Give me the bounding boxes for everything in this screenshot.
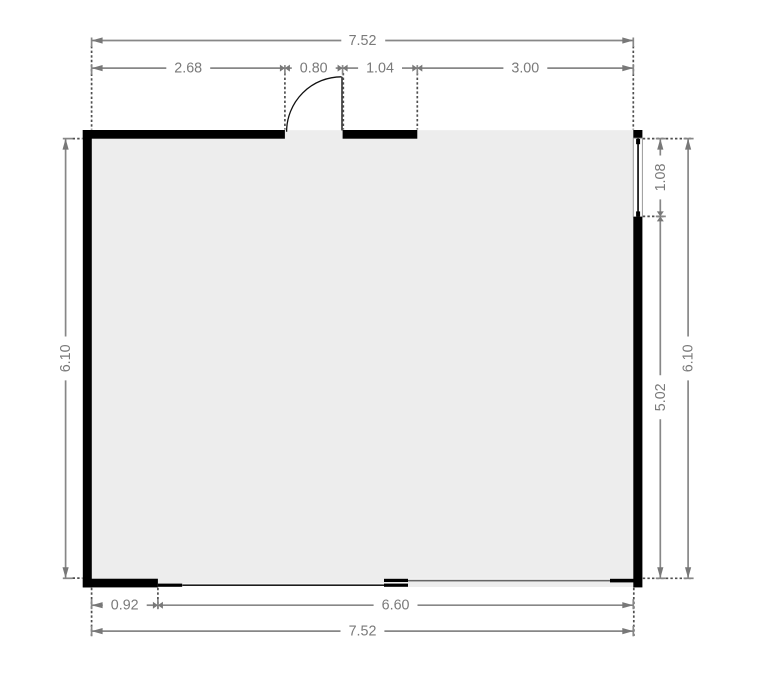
svg-text:0.92: 0.92 xyxy=(111,598,139,614)
svg-text:6.10: 6.10 xyxy=(58,344,74,372)
svg-text:1.04: 1.04 xyxy=(366,61,394,77)
svg-text:7.52: 7.52 xyxy=(349,624,377,640)
svg-text:5.02: 5.02 xyxy=(653,383,669,411)
svg-text:2.68: 2.68 xyxy=(174,61,202,77)
svg-text:6.60: 6.60 xyxy=(382,598,410,614)
svg-text:1.08: 1.08 xyxy=(653,164,669,192)
svg-text:7.52: 7.52 xyxy=(349,33,377,49)
svg-text:3.00: 3.00 xyxy=(511,61,539,77)
svg-text:6.10: 6.10 xyxy=(681,344,697,372)
svg-text:0.80: 0.80 xyxy=(300,61,328,77)
